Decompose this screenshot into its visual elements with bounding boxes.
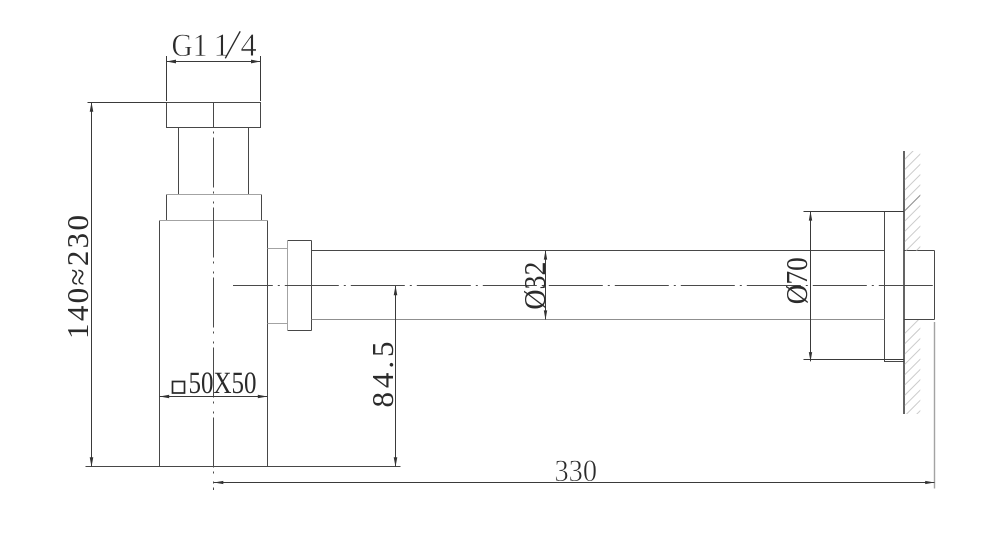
svg-text:4: 4 — [240, 28, 256, 64]
svg-text:G1: G1 — [171, 28, 207, 64]
svg-text:330: 330 — [554, 453, 597, 488]
svg-text:84.5: 84.5 — [365, 342, 400, 408]
svg-text:140≈230: 140≈230 — [60, 215, 95, 339]
svg-text:Ø70: Ø70 — [779, 257, 814, 304]
svg-text:50X50: 50X50 — [188, 365, 256, 400]
svg-text:Ø32: Ø32 — [517, 262, 552, 310]
svg-text:1: 1 — [213, 28, 229, 64]
